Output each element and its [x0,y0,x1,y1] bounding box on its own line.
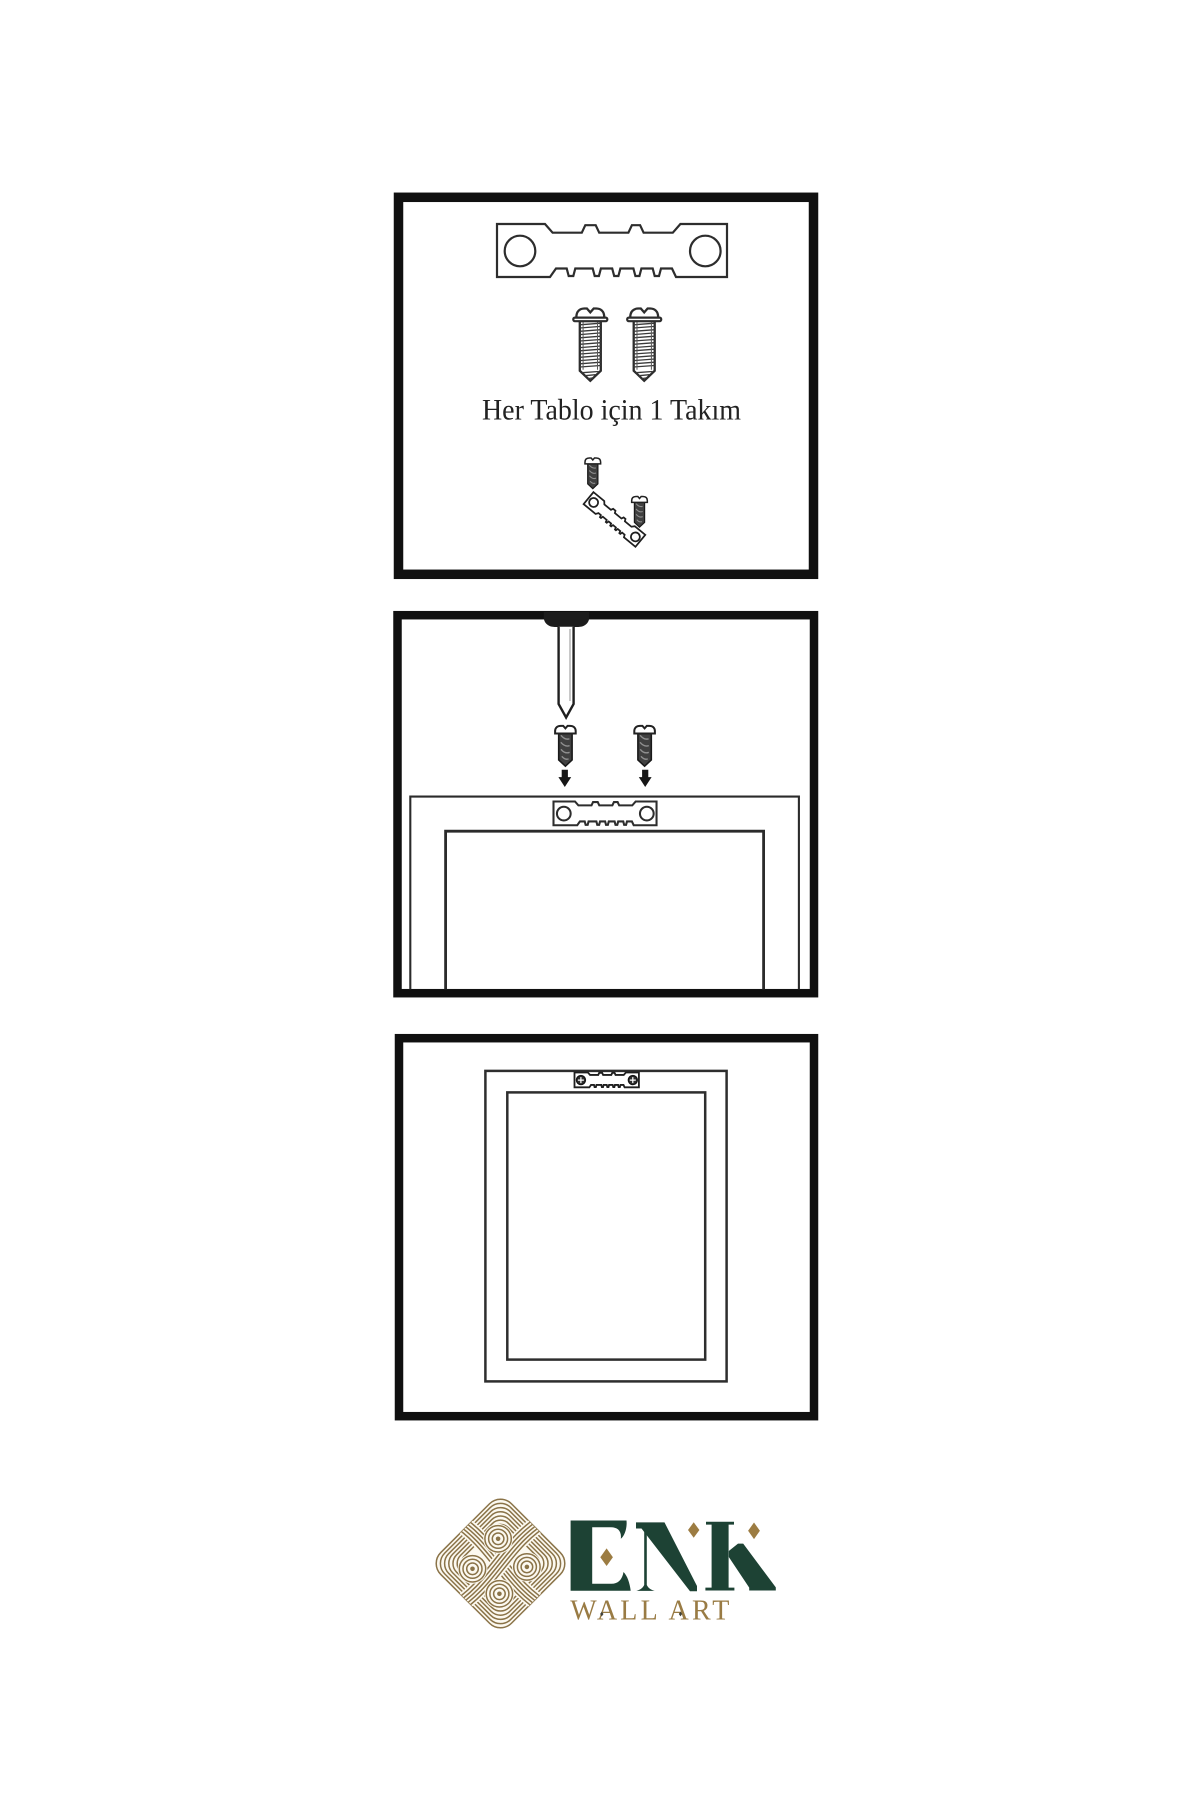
svg-text:Her Tablo için 1 Takım: Her Tablo için 1 Takım [482,394,741,427]
